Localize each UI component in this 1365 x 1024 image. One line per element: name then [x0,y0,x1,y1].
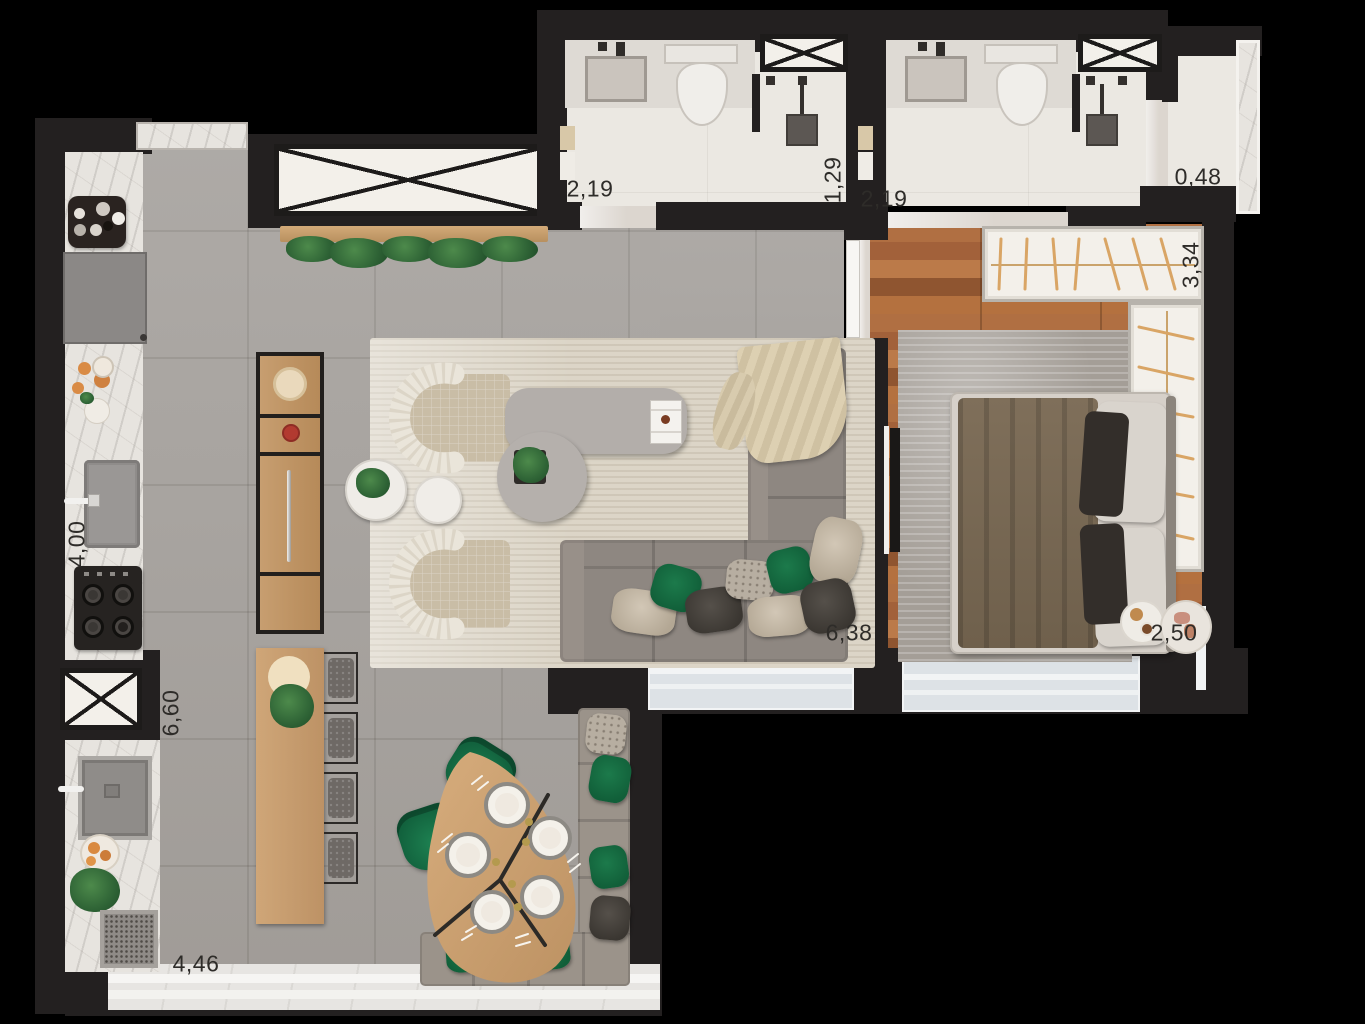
orange-fruit [86,856,96,866]
kitchen-faucet-base [88,494,100,507]
kitchen-top-sill [136,122,248,150]
shaft-x-bath1 [760,34,848,72]
bed-pillow-dark [1078,411,1129,518]
dining-table [408,742,598,1002]
bath1-towel [560,126,575,150]
croissant [1130,608,1143,621]
orange-fruit [78,362,91,375]
bath2-towel [858,152,873,180]
armchair [332,528,532,640]
bar-stool-cushion [328,838,354,878]
dimension-service-width: 4,46 [173,951,220,978]
bath2-towel [858,126,873,150]
bath1-basin [585,56,647,102]
orange-fruit [100,850,111,861]
bed-pillow-dark [1079,523,1128,625]
fern [330,238,388,268]
burner [112,584,134,606]
coffee-cup [96,202,110,216]
dimension-living-length: 6,60 [158,690,185,737]
bar-stool-cushion [328,658,354,698]
bathroom1-bottom-wall-left [548,202,582,230]
tv-panel [890,428,900,552]
bath2-shower-head [1086,114,1118,146]
coffee-cup [90,224,102,236]
dimension-wardrobe-length: 3,34 [1178,242,1205,289]
fern [428,238,488,268]
wardrobe-horizontal [982,226,1204,302]
dimension-bath2-width: 2,19 [861,186,908,213]
burner [82,584,104,606]
stove-4-burner [74,566,142,650]
side-table-small [414,476,462,524]
niche-wall-stub [1162,52,1178,102]
niche-window-band [1236,40,1260,214]
sideboard-handle [287,470,291,562]
herb-sprig [80,392,94,404]
burner [112,616,134,638]
island-plant [270,684,314,728]
bedroom-door-threshold [860,240,870,338]
coffee-cup [112,212,125,225]
kitchen-top-wall [35,118,152,154]
coffee-cup [74,208,85,219]
toilet-tank [664,44,738,64]
shaft-x-bath2 [1078,34,1162,72]
floor-plan: 2,19 1,29 2,19 0,48 3,34 4,00 6,60 6,38 … [0,0,1365,1024]
bed-duvet [958,398,1098,648]
book-dot [661,415,670,424]
juice-pitcher [92,356,114,378]
dimension-living-width: 6,38 [826,620,873,647]
laundry-sink-drain [104,784,120,798]
bar-stool-cushion [328,718,354,758]
appliance-handle [140,334,147,341]
tv-stand-line [884,426,889,554]
bathroom1-left-wall [537,10,567,228]
shaft-x-kitchen [60,668,142,730]
outer-wall-left [35,118,65,1012]
side-table-plant [356,468,390,498]
bathroom2-shower-bottom-wall [1066,206,1146,228]
bath2-shower-hook [1118,76,1127,85]
niche-door-threshold [1146,100,1168,190]
bar-stool-cushion [328,778,354,818]
dimension-bath1-width: 2,19 [567,176,614,203]
coffee-cup [74,224,86,236]
bath1-faucet [598,42,607,51]
laundry-plant [70,868,120,912]
bedroom-door-leaf [846,240,860,338]
shaft-x-living [274,144,542,216]
bath2-basin [905,56,967,102]
bath1-shower-head [786,114,818,146]
toilet-tank [984,44,1058,64]
bath1-faucet [616,42,625,56]
laundry-faucet [58,786,84,792]
bath1-shower-hook [766,76,775,85]
fern [482,236,538,262]
dimension-bedroom-width: 2,50 [1151,620,1198,647]
bathroom1-door-threshold [580,206,658,228]
laundry-sink [78,756,152,840]
built-in-appliance [63,252,147,344]
orange-fruit [88,842,100,854]
bath2-faucet [918,42,927,51]
planter-plant [513,447,549,483]
grill-appliance [100,910,158,968]
sideboard-tray [273,367,307,401]
coffee-cup [103,221,113,231]
sideboard-red-bowl [282,424,300,442]
dimension-bath1-shower-width: 1,29 [820,157,847,204]
bedroom-window [902,656,1140,712]
bathroom1-bottom-wall-right [656,202,846,230]
burner [82,616,104,638]
dimension-kitchen-length: 4,00 [64,521,91,568]
bath1-shower-partition [752,74,760,132]
bath2-shower-partition [1072,74,1080,132]
bath2-shower-hook [1086,76,1095,85]
dimension-side-niche-width: 0,48 [1175,164,1222,191]
stove-knobs [84,572,132,576]
bath2-faucet [936,42,945,56]
